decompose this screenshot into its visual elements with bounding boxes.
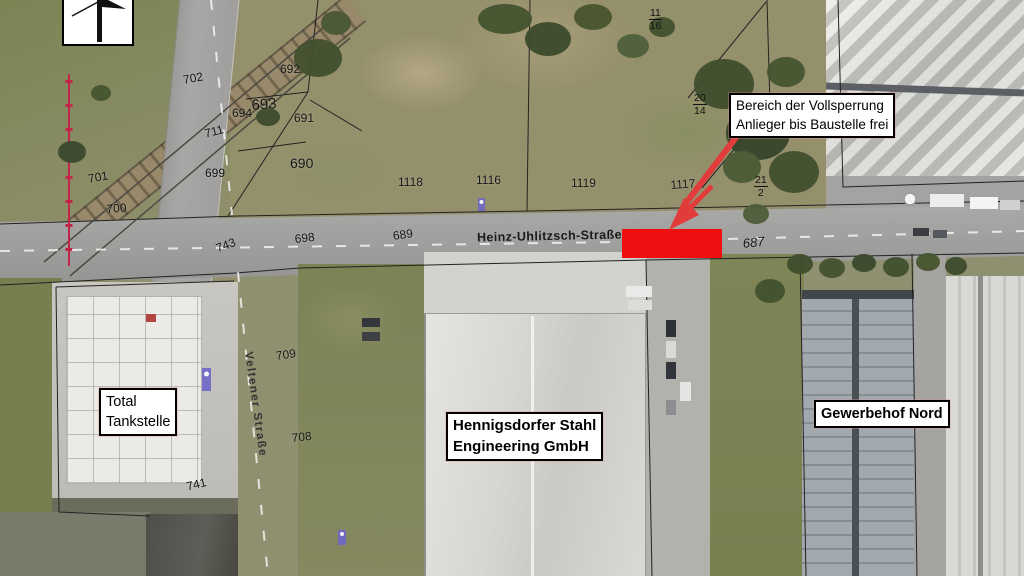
parcel-number: 702 bbox=[182, 70, 204, 87]
stahl-company-line1: Hennigsdorfer Stahl bbox=[453, 416, 596, 437]
parcel-number: 711 bbox=[203, 122, 225, 140]
gas-station-line1: Total bbox=[106, 392, 170, 412]
parcel-fraction: 2014 bbox=[693, 92, 707, 117]
parcel-fraction: 1116 bbox=[649, 7, 662, 32]
north-arrow-icon bbox=[62, 0, 134, 46]
parcel-number: 708 bbox=[291, 429, 312, 445]
parcel-number: 693 bbox=[251, 95, 277, 114]
parcel-number: 1118 bbox=[398, 175, 423, 189]
parcel-number: 692 bbox=[280, 62, 300, 76]
parcel-number: 691 bbox=[294, 111, 314, 125]
closure-note-callout: Bereich der Vollsperrung Anlieger bis Ba… bbox=[729, 93, 895, 138]
parcel-number: 1119 bbox=[571, 176, 596, 190]
stahl-company-line2: Engineering GmbH bbox=[453, 437, 596, 458]
site-plan-map: Heinz-Uhlitzsch-Straße Veltener Straße 7… bbox=[0, 0, 1024, 576]
closure-note-line2: Anlieger bis Baustelle frei bbox=[736, 116, 888, 135]
parcel-number: 1116 bbox=[476, 173, 501, 187]
parcel-number: 1117 bbox=[670, 176, 696, 192]
parcel-number: 741 bbox=[185, 475, 208, 493]
parcel-number: 700 bbox=[106, 201, 127, 216]
parcel-number: 689 bbox=[392, 226, 414, 243]
closure-note-line1: Bereich der Vollsperrung bbox=[736, 97, 888, 116]
gewerbehof-line1: Gewerbehof Nord bbox=[821, 404, 943, 424]
parcel-number: 701 bbox=[87, 169, 109, 186]
gas-station-line2: Tankstelle bbox=[106, 412, 170, 432]
gewerbehof-callout: Gewerbehof Nord bbox=[814, 400, 950, 428]
stahl-company-callout: Hennigsdorfer Stahl Engineering GmbH bbox=[446, 412, 603, 461]
parcel-number: 709 bbox=[275, 346, 297, 363]
parcel-number: 698 bbox=[294, 230, 315, 246]
parcel-fraction: 212 bbox=[754, 174, 768, 199]
parcel-number: 694 bbox=[232, 106, 252, 120]
parcel-number-layer: 7026926936946917116906997017007436986891… bbox=[0, 0, 1024, 576]
parcel-number: 743 bbox=[214, 235, 238, 255]
gas-station-callout: Total Tankstelle bbox=[99, 388, 177, 436]
parcel-number: 690 bbox=[290, 155, 313, 171]
parcel-number: 699 bbox=[205, 166, 225, 180]
parcel-number: 687 bbox=[742, 234, 765, 251]
